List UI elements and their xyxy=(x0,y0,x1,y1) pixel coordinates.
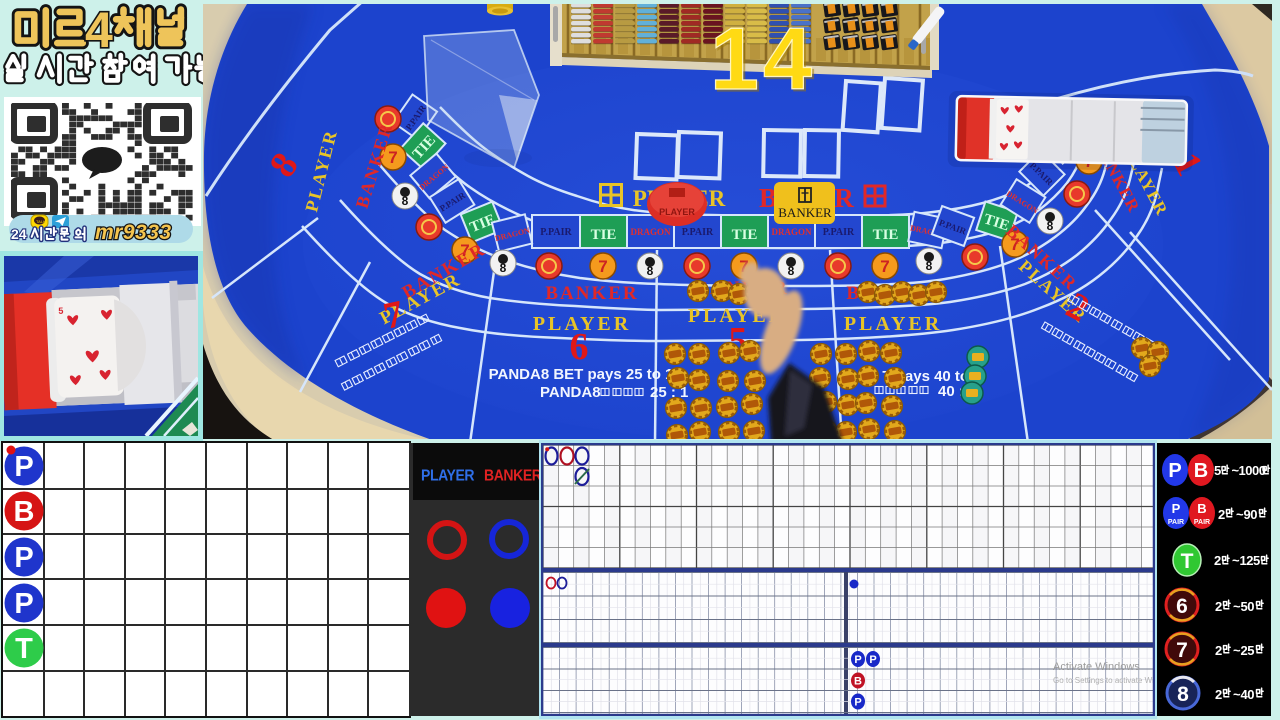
svg-text:P: P xyxy=(854,654,861,666)
svg-text:14: 14 xyxy=(710,9,816,108)
svg-text:P: P xyxy=(14,588,33,620)
svg-text:PANDA8: PANDA8 xyxy=(540,384,601,401)
svg-text:24: 24 xyxy=(11,226,27,242)
svg-text:2: 2 xyxy=(1215,643,1222,658)
svg-text:mr9333: mr9333 xyxy=(95,221,172,244)
svg-text:T: T xyxy=(1181,550,1194,573)
svg-text:40: 40 xyxy=(1241,687,1255,702)
svg-text:P.PAIR: P.PAIR xyxy=(540,227,572,238)
svg-text:P.PAIR: P.PAIR xyxy=(823,227,855,238)
svg-text:P: P xyxy=(869,654,876,666)
svg-text:8: 8 xyxy=(788,264,795,278)
svg-text:7: 7 xyxy=(1176,639,1188,662)
svg-text:7: 7 xyxy=(880,257,889,276)
svg-text:PAIR: PAIR xyxy=(1168,519,1184,526)
svg-text:2: 2 xyxy=(1218,507,1225,522)
svg-text:B: B xyxy=(14,496,35,528)
svg-text:TIE: TIE xyxy=(873,227,899,243)
svg-text:5: 5 xyxy=(58,306,63,316)
svg-text:TIE: TIE xyxy=(732,227,758,243)
svg-text:50: 50 xyxy=(1241,599,1255,614)
svg-text:6: 6 xyxy=(570,326,589,368)
svg-text:DRAGON: DRAGON xyxy=(772,227,812,237)
svg-text:B: B xyxy=(854,676,862,688)
svg-text:R: R xyxy=(834,183,854,213)
svg-text:7: 7 xyxy=(598,257,607,276)
svg-text:90: 90 xyxy=(1244,507,1258,522)
svg-text:P: P xyxy=(854,697,861,709)
svg-text:PANDA8 BET pays 25 to 1: PANDA8 BET pays 25 to 1 xyxy=(489,366,674,383)
svg-text:8: 8 xyxy=(1047,219,1054,233)
svg-text:P: P xyxy=(1168,460,1181,482)
svg-text:5: 5 xyxy=(1214,463,1221,478)
svg-text:PLAYER: PLAYER xyxy=(844,313,942,335)
svg-text:BANKER: BANKER xyxy=(778,205,832,220)
svg-text:2: 2 xyxy=(1214,553,1221,568)
svg-text:Go to Settings to activate Win: Go to Settings to activate Windows. xyxy=(1053,676,1155,685)
svg-text:8: 8 xyxy=(1177,683,1189,706)
svg-text:DRAGON: DRAGON xyxy=(631,227,671,237)
svg-text:6: 6 xyxy=(1176,595,1188,618)
svg-text:BANKER: BANKER xyxy=(545,283,638,304)
svg-text:B: B xyxy=(1197,501,1206,516)
svg-text:P: P xyxy=(1172,501,1181,516)
svg-text:2: 2 xyxy=(1215,687,1222,702)
svg-text:P: P xyxy=(14,542,33,574)
svg-text:P.PAIR: P.PAIR xyxy=(682,227,714,238)
svg-text:25: 25 xyxy=(1241,643,1255,658)
svg-text:T: T xyxy=(15,633,33,665)
svg-text:125: 125 xyxy=(1240,553,1260,568)
svg-text:B: B xyxy=(1194,460,1208,482)
svg-text:Activate Windows: Activate Windows xyxy=(1053,661,1140,673)
svg-text:1000: 1000 xyxy=(1239,463,1266,478)
svg-text:PLAYER: PLAYER xyxy=(659,207,695,217)
svg-text:8: 8 xyxy=(402,194,409,208)
svg-text:P: P xyxy=(14,451,33,483)
svg-text:TALK: TALK xyxy=(36,219,46,224)
svg-text:7: 7 xyxy=(388,148,397,167)
svg-text:PAIR: PAIR xyxy=(1194,519,1210,526)
svg-text:8: 8 xyxy=(500,261,507,275)
svg-text:TIE: TIE xyxy=(591,227,617,243)
svg-text:2: 2 xyxy=(1215,599,1222,614)
svg-text:8: 8 xyxy=(647,264,654,278)
svg-text:8: 8 xyxy=(926,259,933,273)
